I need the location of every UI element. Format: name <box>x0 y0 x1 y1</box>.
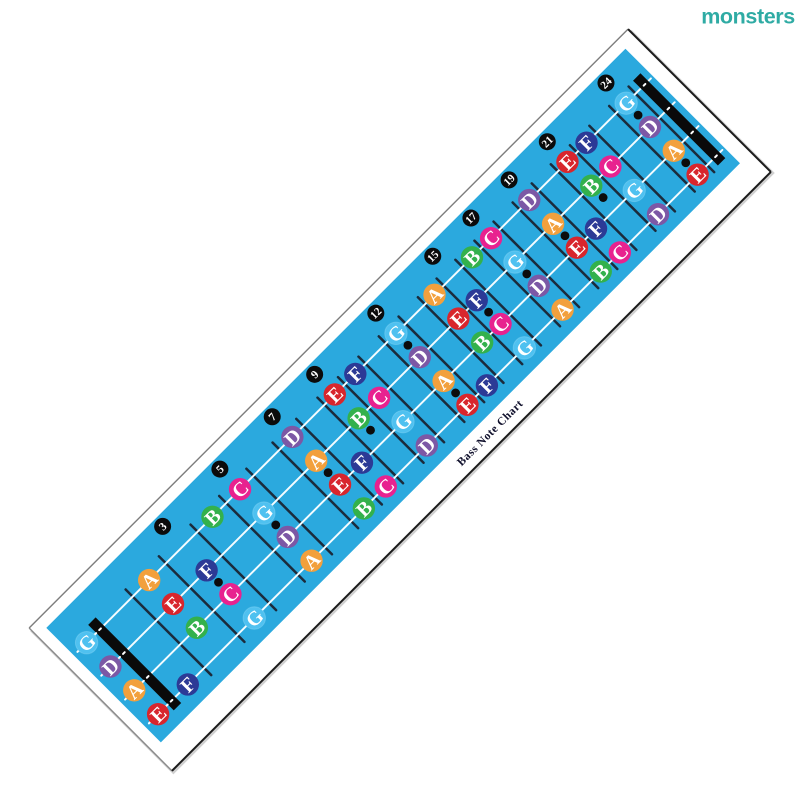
svg-text:monsters: monsters <box>701 4 795 28</box>
